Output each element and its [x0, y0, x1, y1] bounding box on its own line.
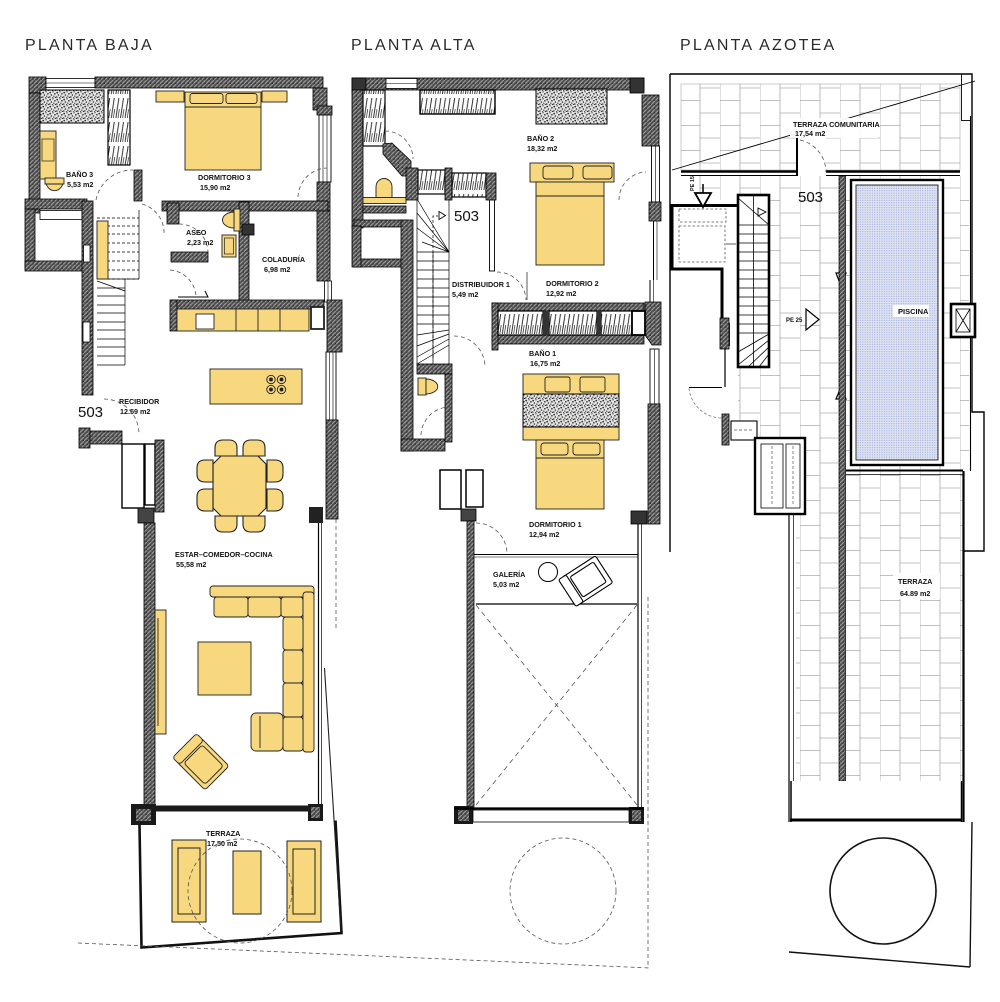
- svg-text:GALERÍA: GALERÍA: [493, 570, 525, 579]
- svg-text:503: 503: [454, 208, 479, 225]
- svg-text:16,75 m2: 16,75 m2: [530, 359, 560, 368]
- svg-text:18,32 m2: 18,32 m2: [527, 144, 557, 153]
- svg-text:BAÑO 2: BAÑO 2: [527, 134, 554, 143]
- svg-text:PLANTA AZOTEA: PLANTA AZOTEA: [680, 37, 836, 54]
- svg-text:TERRAZA: TERRAZA: [206, 829, 240, 838]
- svg-text:PE 15: PE 15: [690, 176, 696, 191]
- svg-text:COLADURÍA: COLADURÍA: [262, 255, 305, 264]
- svg-text:ESTAR–COMEDOR–COCINA: ESTAR–COMEDOR–COCINA: [175, 550, 273, 559]
- svg-text:PISCINA: PISCINA: [898, 307, 929, 316]
- svg-text:DORMITORIO 2: DORMITORIO 2: [546, 279, 599, 288]
- svg-text:6,98 m2: 6,98 m2: [264, 265, 290, 274]
- svg-text:5,49 m2: 5,49 m2: [452, 290, 478, 299]
- svg-text:ASEO: ASEO: [186, 228, 207, 237]
- svg-text:TERRAZA COMUNITARIA: TERRAZA COMUNITARIA: [793, 120, 880, 129]
- svg-text:12,94 m2: 12,94 m2: [529, 530, 559, 539]
- svg-text:64.89 m2: 64.89 m2: [900, 589, 930, 598]
- svg-text:5,03 m2: 5,03 m2: [493, 580, 519, 589]
- svg-text:15,90 m2: 15,90 m2: [200, 183, 230, 192]
- svg-text:TERRAZA: TERRAZA: [898, 577, 932, 586]
- svg-text:PLANTA BAJA: PLANTA BAJA: [25, 37, 154, 54]
- svg-text:5,53 m2: 5,53 m2: [67, 180, 93, 189]
- svg-text:55,58 m2: 55,58 m2: [176, 560, 206, 569]
- svg-text:17,54 m2: 17,54 m2: [795, 129, 825, 138]
- svg-text:RECIBIDOR: RECIBIDOR: [119, 397, 160, 406]
- svg-text:503: 503: [78, 404, 103, 421]
- svg-text:503: 503: [798, 189, 823, 206]
- svg-text:17,50 m2: 17,50 m2: [207, 839, 237, 848]
- svg-text:BAÑO 1: BAÑO 1: [529, 349, 556, 358]
- svg-text:PE 25: PE 25: [786, 318, 803, 324]
- svg-text:12,92 m2: 12,92 m2: [546, 289, 576, 298]
- svg-text:DORMITORIO 3: DORMITORIO 3: [198, 173, 251, 182]
- svg-text:DORMITORIO 1: DORMITORIO 1: [529, 520, 582, 529]
- svg-text:BAÑO 3: BAÑO 3: [66, 170, 93, 179]
- svg-text:12.59 m2: 12.59 m2: [120, 407, 150, 416]
- svg-text:PLANTA ALTA: PLANTA ALTA: [351, 37, 477, 54]
- svg-text:DISTRIBUIDOR 1: DISTRIBUIDOR 1: [452, 280, 510, 289]
- svg-text:2,23 m2: 2,23 m2: [187, 238, 213, 247]
